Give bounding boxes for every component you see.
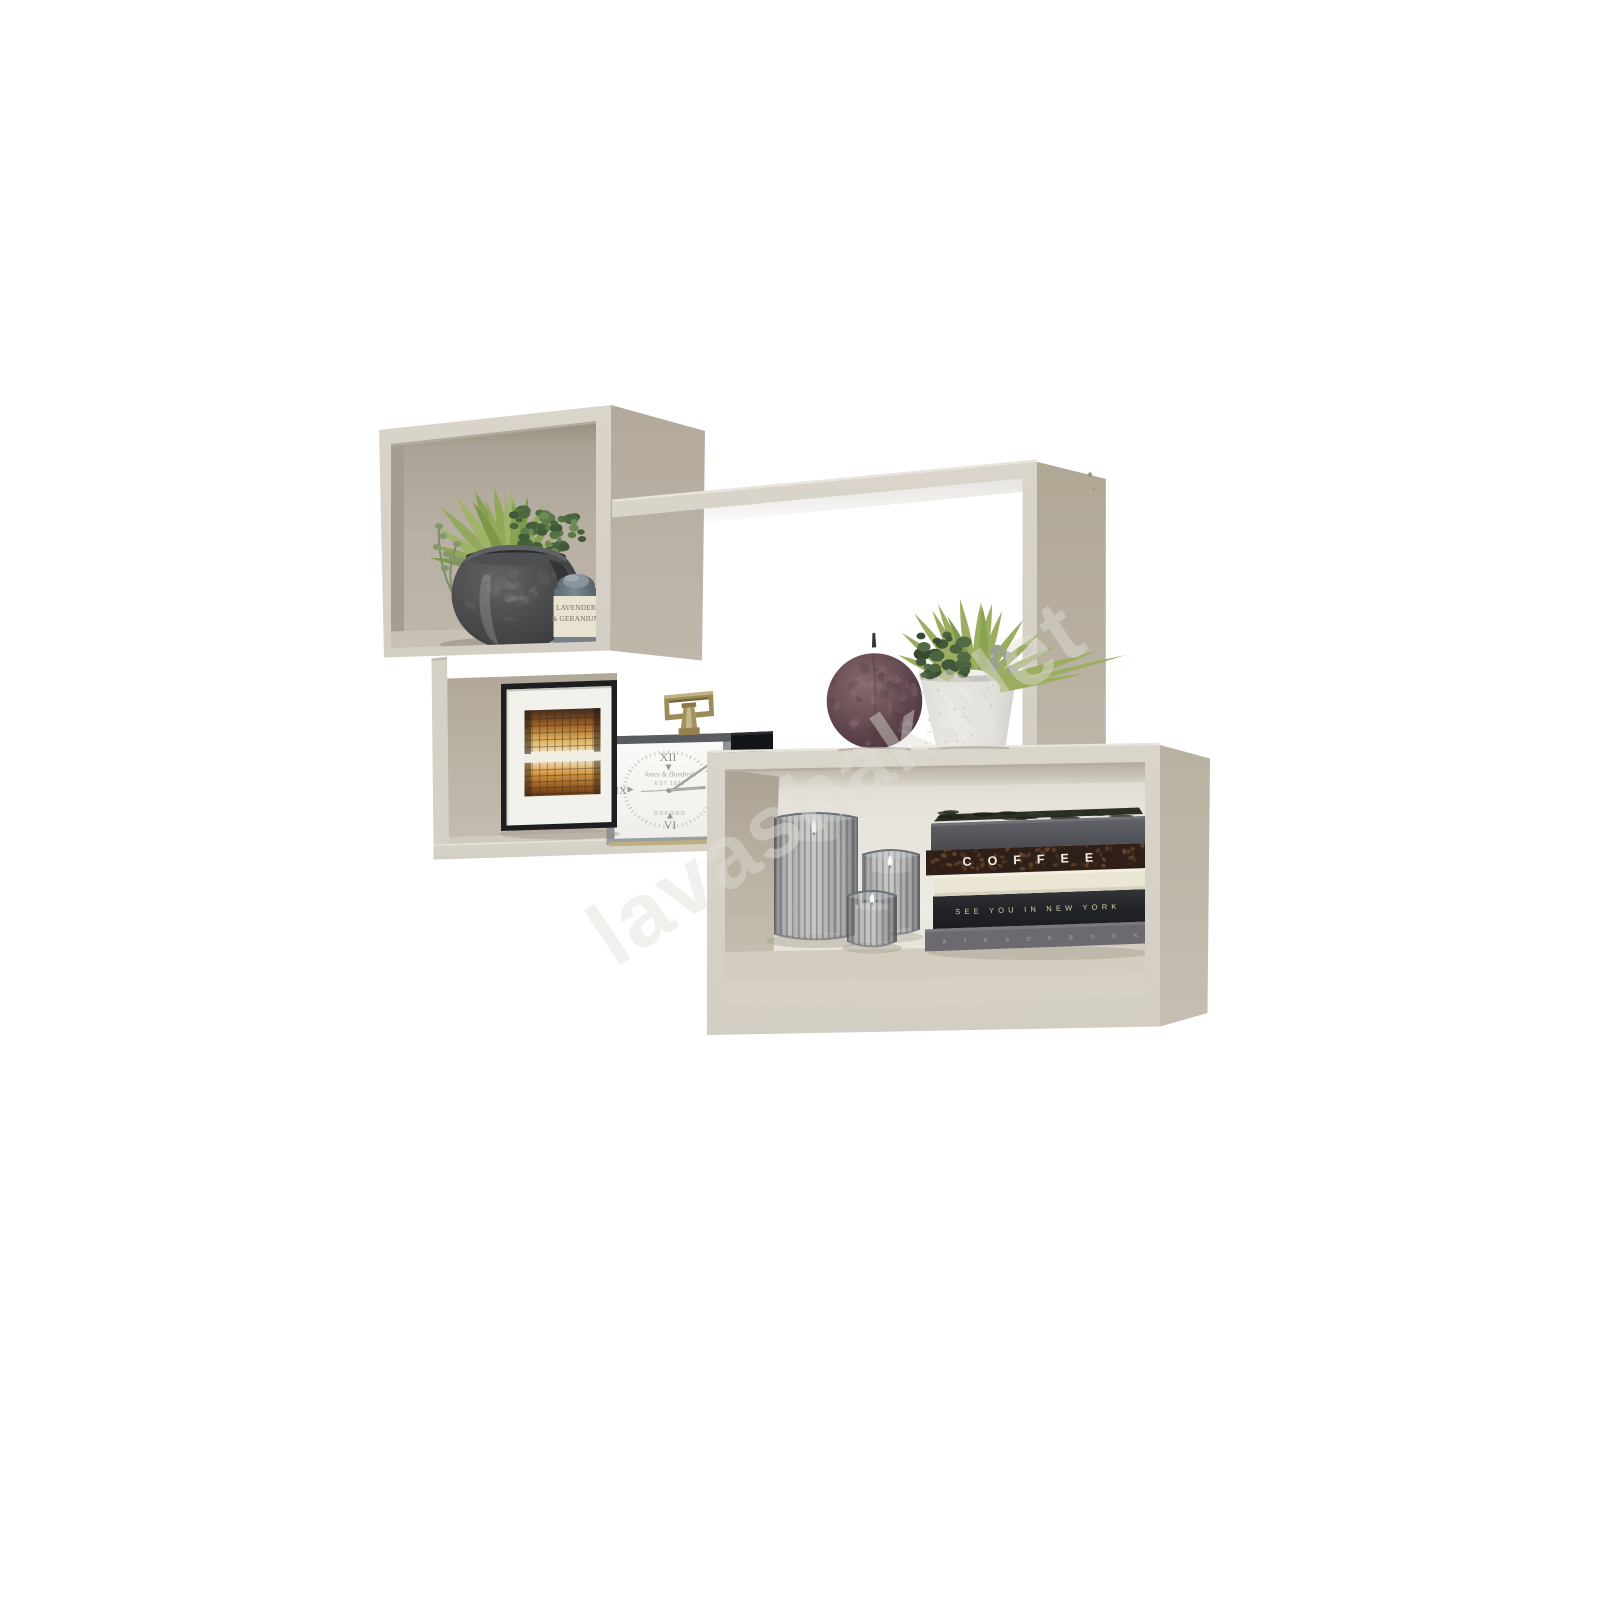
svg-text:& GERANIUM: & GERANIUM [552,614,601,623]
svg-text:VI: VI [664,818,677,832]
svg-text:LAVENDER: LAVENDER [556,603,597,612]
svg-text:OXFORD: OXFORD [654,811,687,817]
svg-text:XII: XII [660,750,677,764]
